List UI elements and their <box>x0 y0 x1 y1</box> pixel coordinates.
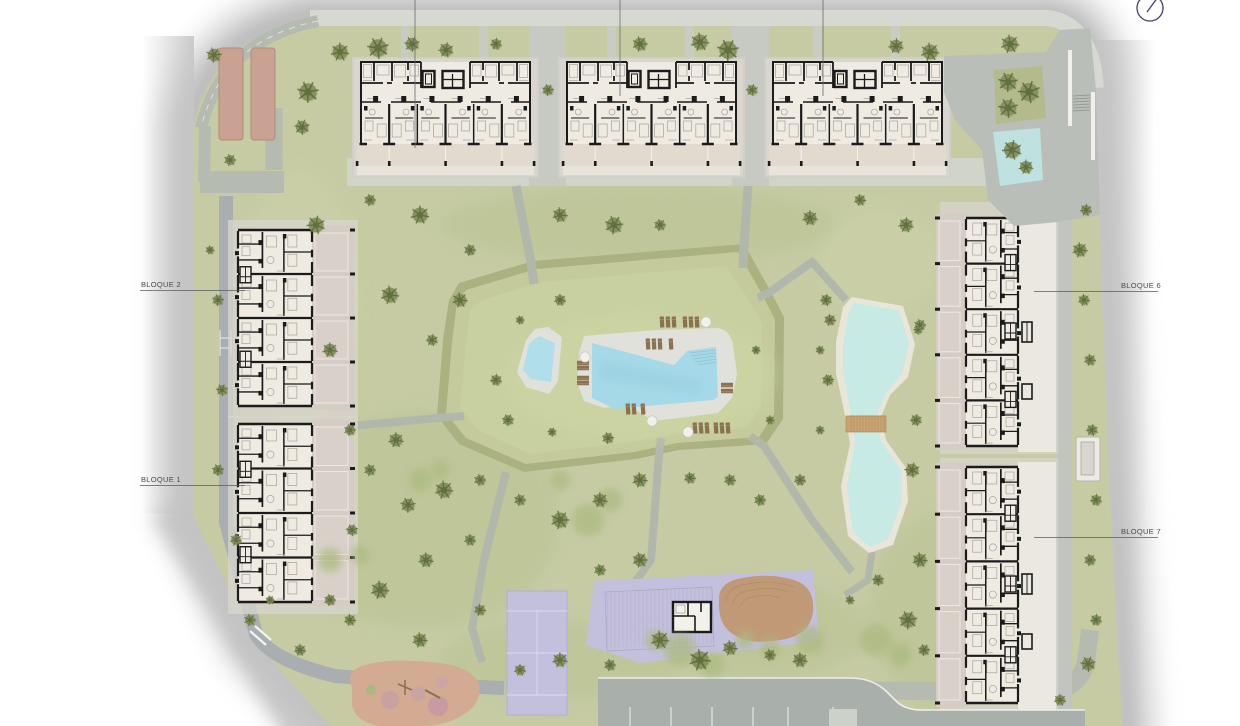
svg-text:BLOQUE 6: BLOQUE 6 <box>1121 281 1161 290</box>
svg-text:BLOQUE 1: BLOQUE 1 <box>141 475 181 484</box>
svg-text:BLOQUE 7: BLOQUE 7 <box>1121 527 1161 536</box>
svg-text:BLOQUE 2: BLOQUE 2 <box>141 280 181 289</box>
